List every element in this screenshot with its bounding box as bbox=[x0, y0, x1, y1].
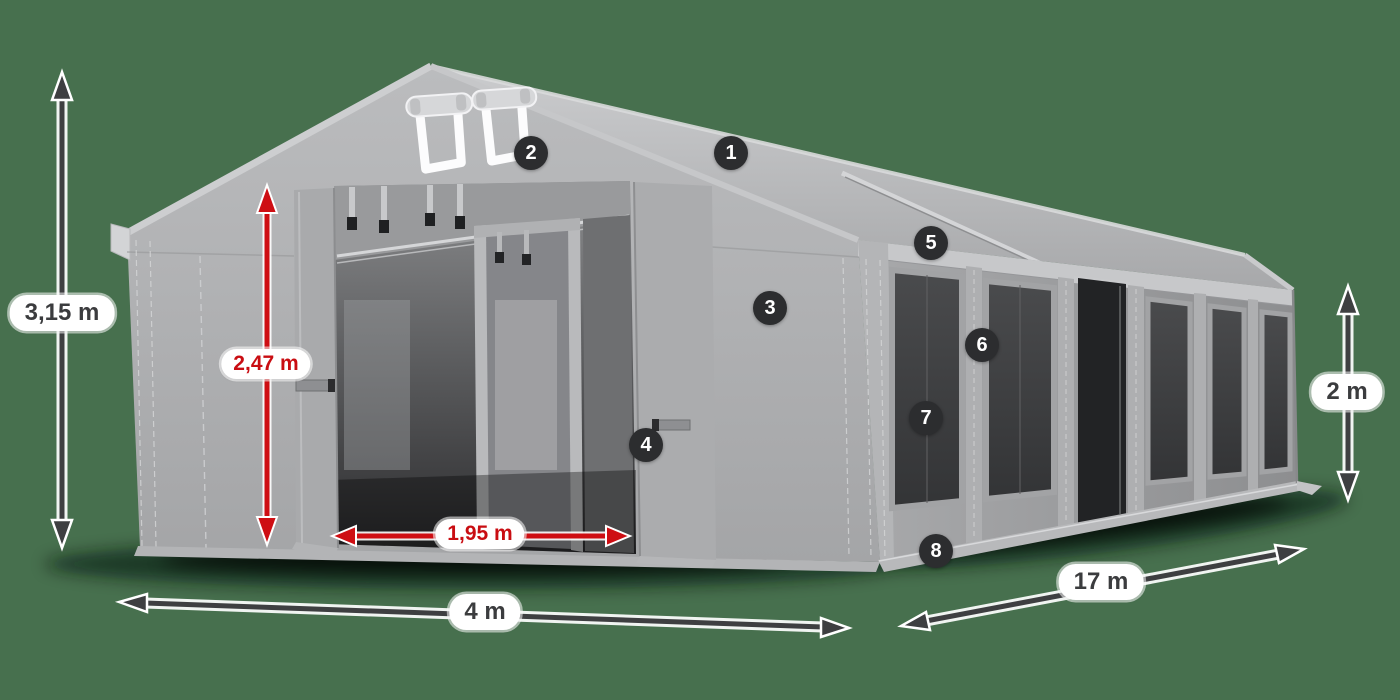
tent-illustration bbox=[0, 0, 1400, 700]
side-open-doorway bbox=[1074, 276, 1130, 523]
diagram-stage: 3,15 m 2,47 m 1,95 m 4 m 17 m 2 m 1 2 3 … bbox=[0, 0, 1400, 700]
dimension-label-door-height: 2,47 m bbox=[221, 349, 310, 379]
callout-1: 1 bbox=[714, 136, 748, 170]
dimension-label-door-width: 1,95 m bbox=[435, 519, 524, 549]
callout-5: 5 bbox=[914, 226, 948, 260]
front-entrance-opening bbox=[330, 181, 636, 554]
dimension-label-side-length: 17 m bbox=[1059, 564, 1144, 600]
callout-6: 6 bbox=[965, 328, 999, 362]
callout-2: 2 bbox=[514, 136, 548, 170]
callout-4: 4 bbox=[629, 428, 663, 462]
callout-8: 8 bbox=[919, 534, 953, 568]
dimension-label-front-width: 4 m bbox=[449, 594, 520, 630]
callout-7: 7 bbox=[909, 401, 943, 435]
right-door-leaf bbox=[634, 182, 716, 568]
dimension-label-total-height: 3,15 m bbox=[10, 295, 115, 331]
dimension-label-side-height: 2 m bbox=[1311, 374, 1382, 410]
callout-3: 3 bbox=[753, 291, 787, 325]
